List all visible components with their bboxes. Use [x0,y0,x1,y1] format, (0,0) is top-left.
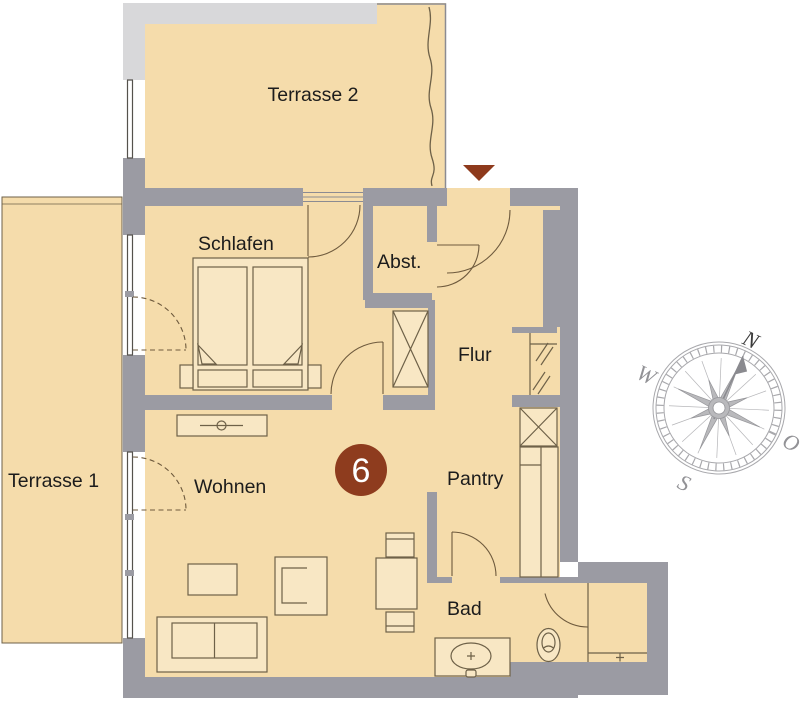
wall-segment [428,300,435,410]
wall-segment [123,355,145,452]
window-divider [125,291,134,297]
label-schlafen: Schlafen [198,233,274,255]
armchair-body [275,557,327,615]
armchair [275,557,327,615]
wall-segment [500,577,578,583]
wall-segment [383,395,435,410]
label-pantry: Pantry [447,468,504,490]
washbasin-faucet [466,670,476,677]
terrace-1 [2,197,122,643]
compass-label-south: S [674,469,695,496]
wall-segment [427,206,437,242]
window-terrace2-west [127,80,133,158]
nightstand-left [180,365,193,388]
chair-top [386,533,414,557]
wall-segment [543,210,560,327]
wall-segment [123,638,145,698]
shaft-box-flur [393,311,428,387]
wall-segment [123,188,145,235]
wall-segment [512,327,557,333]
tv-sideboard [177,415,267,436]
floor-plan-page: Terrasse 2 Terrasse 1 Schlafen Abst. Flu… [0,0,800,701]
wall-segment [370,293,432,300]
chair-bottom [386,612,414,632]
compass-label-north: N [738,325,764,355]
coffee-table [188,564,237,595]
kitchenette-counter [520,447,558,577]
bed-mattress-left [198,267,247,365]
dining-table [376,558,417,609]
wall-segment [427,577,452,583]
wall-segment [647,562,668,695]
label-bad: Bad [447,598,482,620]
wall-segment [123,677,578,698]
wall-segment [123,158,145,188]
unit-number: 6 [352,452,371,490]
wall-segment [363,206,373,300]
entrance-arrow-icon [463,165,495,181]
wall-segment [365,300,433,308]
bed-pillow-right [253,370,302,387]
wall-segment [145,395,332,410]
window-divider [125,570,134,576]
sofa [157,617,267,672]
label-flur: Flur [458,344,492,366]
kitchenette [520,447,558,577]
wall-segment [427,492,437,583]
wall-segment [560,188,578,562]
wall-segment [512,395,560,407]
wall-segment [123,3,377,24]
label-abstellraum: Abst. [377,251,421,273]
shaft-box-pantry [520,408,557,446]
label-wohnen: Wohnen [194,476,266,498]
wall-segment [123,188,303,206]
bed-pillow-left [198,370,247,387]
label-terrasse-2: Terrasse 2 [267,84,358,106]
wall-segment [123,3,145,80]
double-bed [180,258,321,390]
unit-badge: 6 [335,444,387,496]
bed-mattress-right [253,267,302,365]
floor-plan-drawing: Terrasse 2 Terrasse 1 Schlafen Abst. Flu… [0,0,800,701]
label-terrasse-1: Terrasse 1 [8,470,99,492]
nightstand-right [308,365,321,388]
window-divider [125,514,134,520]
compass-label-east: O [779,428,800,457]
window-wohnen [127,452,133,638]
terrace-1-floor [2,197,122,643]
entrance-opening [447,188,510,206]
compass-rose-icon: N O S W [598,291,800,532]
wall-segment [363,188,447,206]
